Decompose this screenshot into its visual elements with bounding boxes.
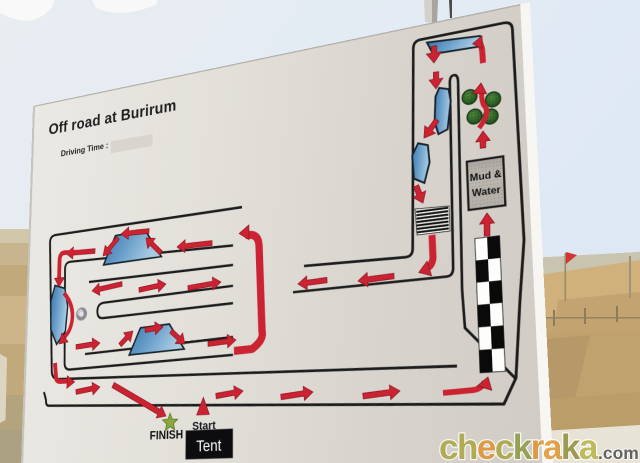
- svg-text:.com: .com: [598, 443, 639, 463]
- svg-text:checkraka: checkraka: [439, 428, 599, 463]
